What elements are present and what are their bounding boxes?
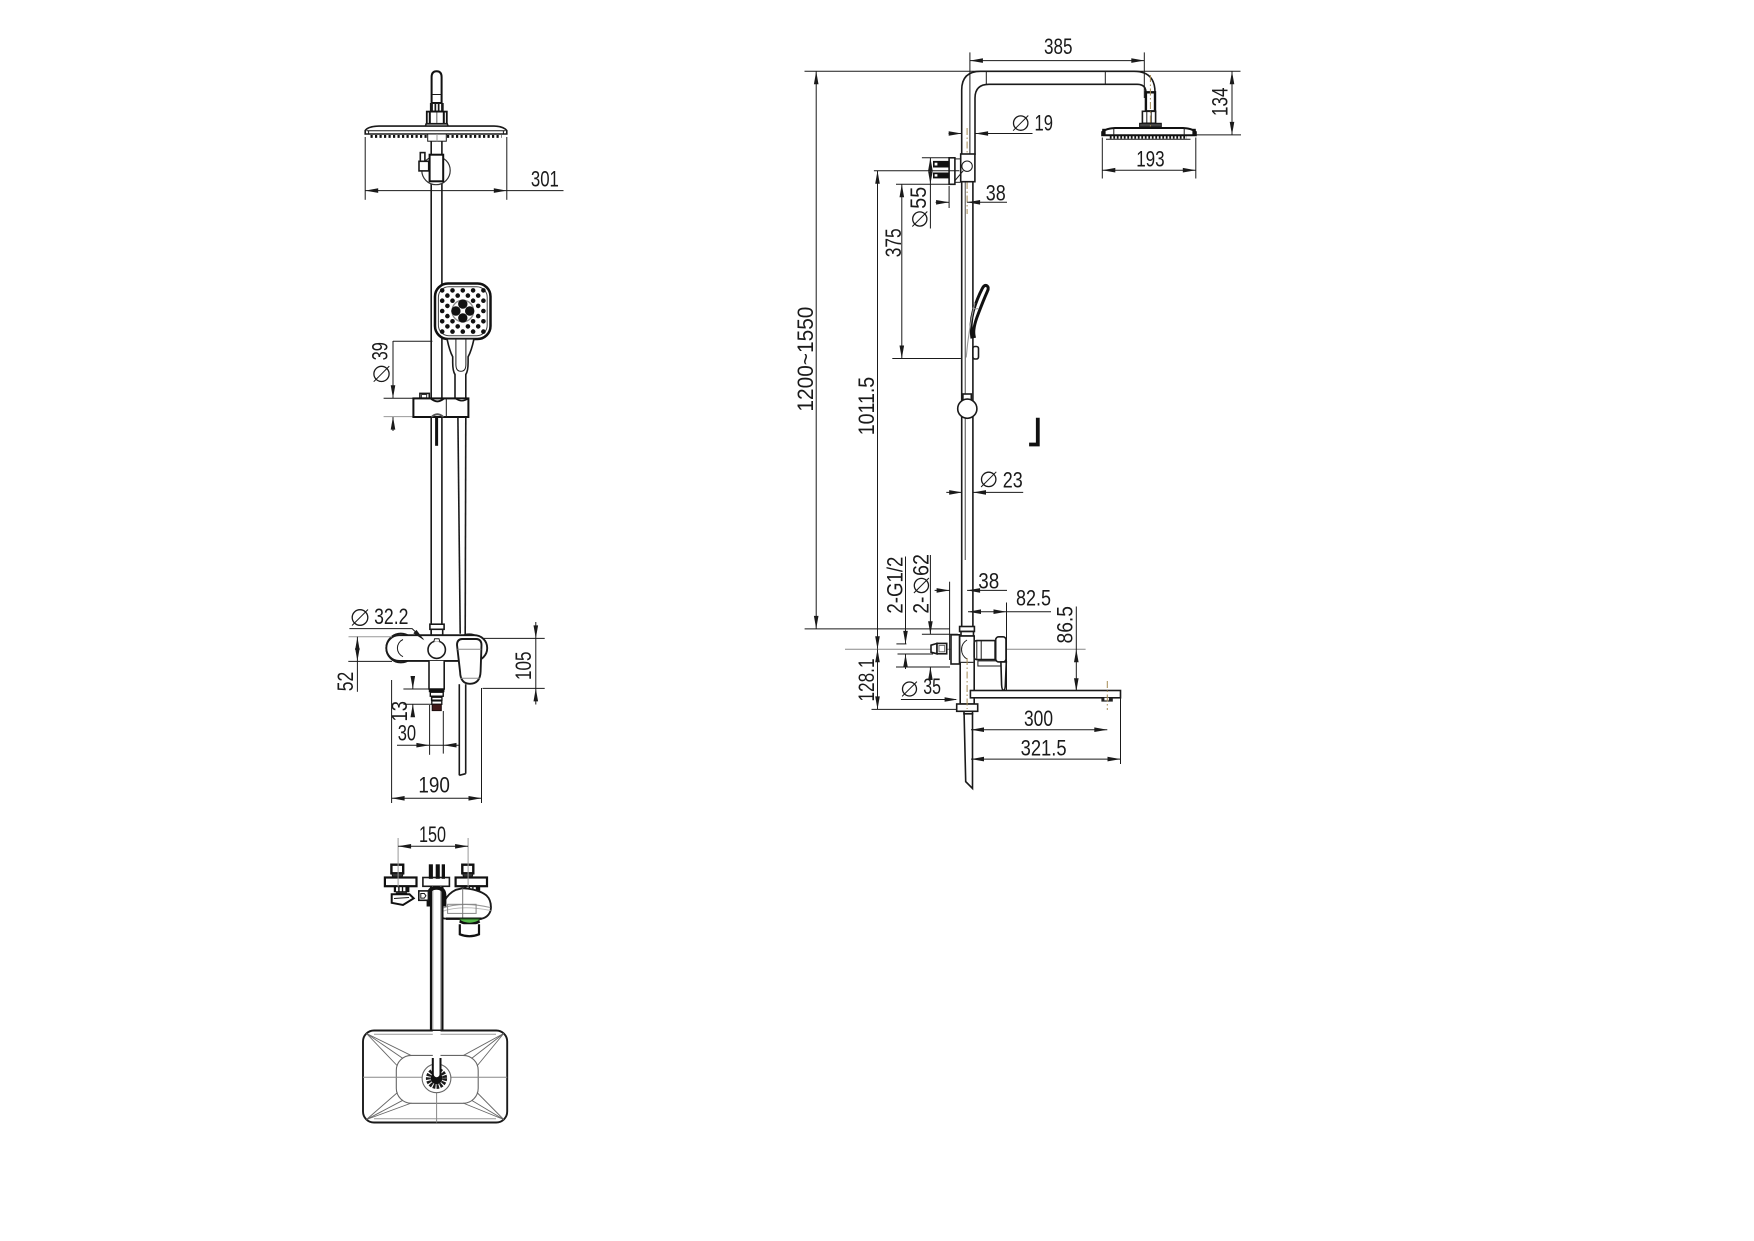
svg-text:19: 19 xyxy=(1035,110,1054,135)
svg-text:39: 39 xyxy=(368,342,393,360)
svg-text:32.2: 32.2 xyxy=(374,604,408,629)
svg-text:82.5: 82.5 xyxy=(1016,586,1051,611)
svg-text:190: 190 xyxy=(418,773,450,798)
svg-text:2-G1/2: 2-G1/2 xyxy=(883,557,908,614)
svg-text:86.5: 86.5 xyxy=(1052,606,1077,644)
svg-text:301: 301 xyxy=(531,166,559,191)
svg-text:13: 13 xyxy=(387,701,412,722)
svg-text:38: 38 xyxy=(978,569,999,594)
svg-text:62: 62 xyxy=(909,554,934,576)
svg-text:1011.5: 1011.5 xyxy=(854,377,879,436)
svg-text:321.5: 321.5 xyxy=(1021,736,1067,761)
svg-text:35: 35 xyxy=(923,674,941,699)
svg-text:193: 193 xyxy=(1136,146,1165,171)
svg-text:150: 150 xyxy=(419,822,446,847)
svg-text:2-: 2- xyxy=(909,597,934,614)
svg-text:52: 52 xyxy=(333,672,358,692)
svg-text:23: 23 xyxy=(1003,467,1023,492)
svg-text:30: 30 xyxy=(398,721,416,746)
svg-text:128.1: 128.1 xyxy=(854,659,879,702)
svg-text:134: 134 xyxy=(1208,88,1233,117)
svg-text:1200~1550: 1200~1550 xyxy=(793,307,818,412)
svg-text:385: 385 xyxy=(1044,34,1073,59)
svg-text:105: 105 xyxy=(511,652,536,681)
svg-text:300: 300 xyxy=(1024,706,1053,731)
svg-text:55: 55 xyxy=(906,187,931,209)
svg-text:38: 38 xyxy=(986,180,1006,205)
svg-text:375: 375 xyxy=(881,228,906,257)
